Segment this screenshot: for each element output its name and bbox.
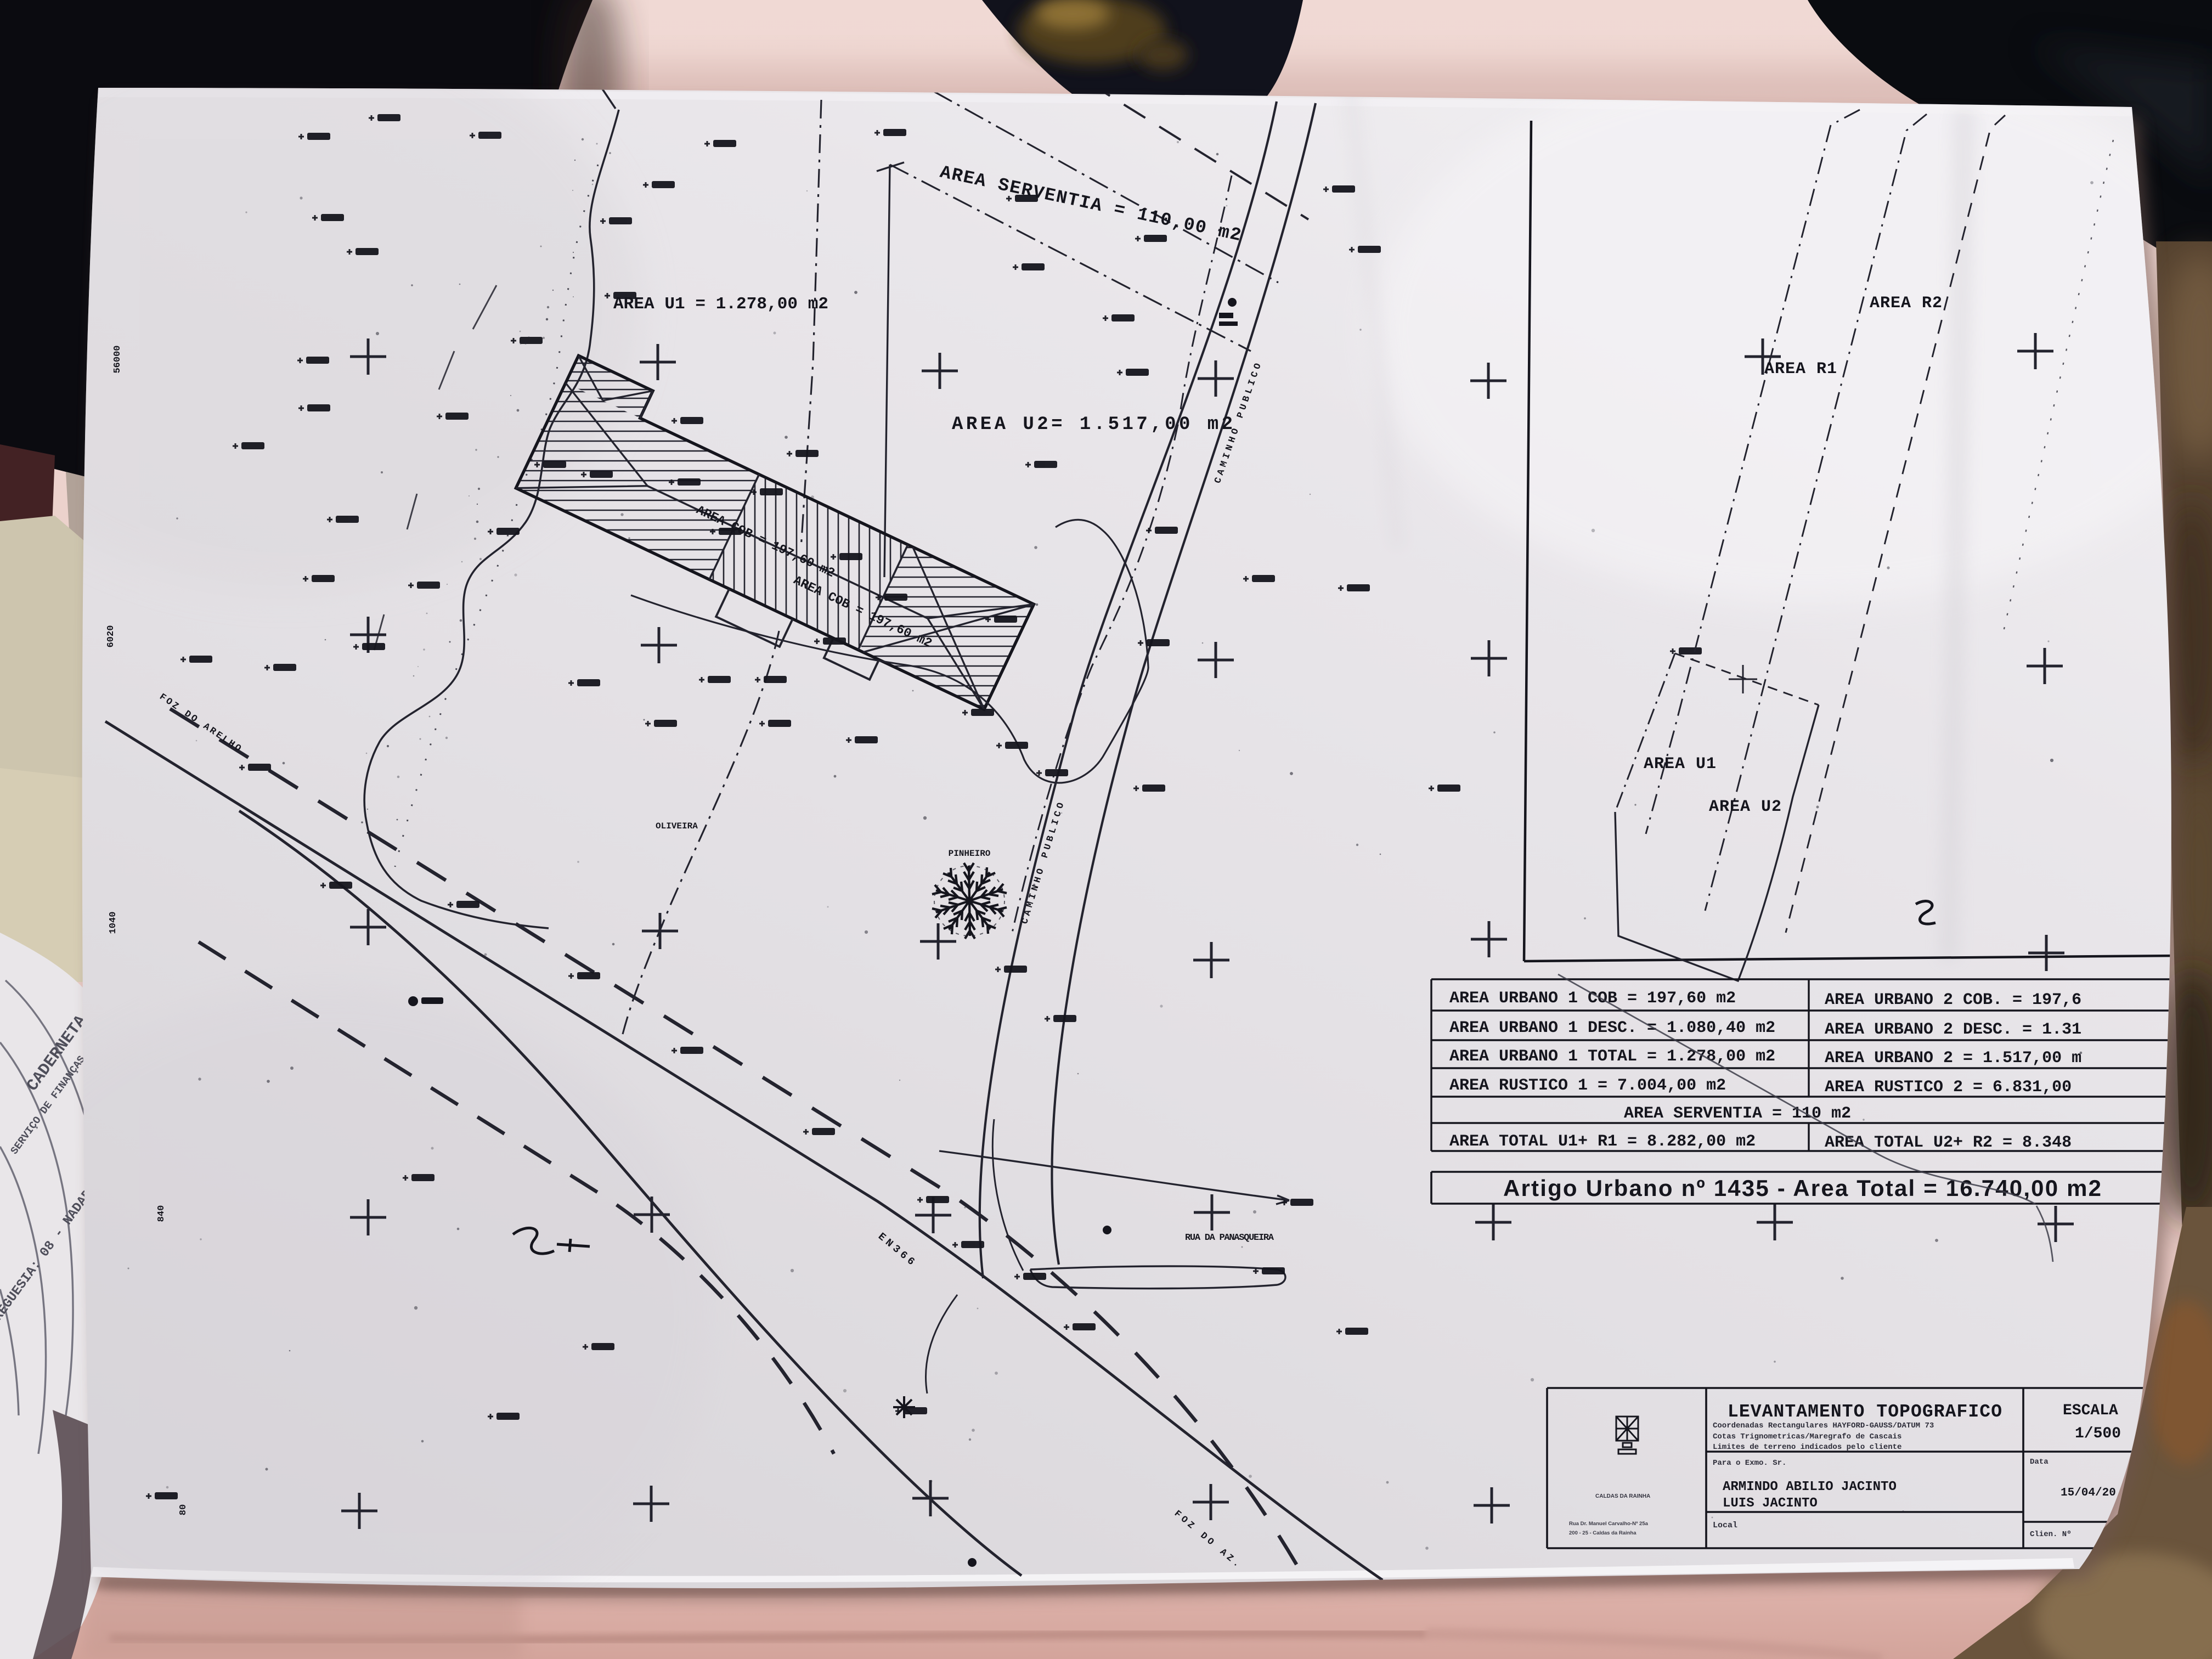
svg-text:RUA DA PANASQUEIRA: RUA DA PANASQUEIRA [1185, 1233, 1274, 1243]
svg-text:AREA RUSTICO 1 = 7.004,00 m2: AREA RUSTICO 1 = 7.004,00 m2 [1449, 1076, 1726, 1095]
svg-text:AREA RUSTICO 2 = 6.831,00: AREA RUSTICO 2 = 6.831,00 [1825, 1078, 2072, 1097]
svg-text:AREA R2: AREA R2 [1870, 294, 1942, 313]
svg-text:1/500: 1/500 [2075, 1425, 2121, 1442]
svg-text:ESCALA: ESCALA [2063, 1402, 2118, 1419]
svg-text:Cotas Trignometricas/Maregrafo: Cotas Trignometricas/Maregrafo de Cascai… [1713, 1432, 1901, 1441]
svg-text:AREA U1: AREA U1 [1644, 755, 1716, 774]
svg-text:AREA URBANO 2 = 1.517,00 m: AREA URBANO 2 = 1.517,00 m [1825, 1049, 2081, 1068]
svg-text:15/04/20: 15/04/20 [2061, 1487, 2116, 1499]
svg-text:LEVANTAMENTO TOPOGRAFICO: LEVANTAMENTO TOPOGRAFICO [1728, 1402, 2002, 1422]
svg-text:AREA TOTAL U1+ R1 = 8.282,00 m: AREA TOTAL U1+ R1 = 8.282,00 m2 [1449, 1132, 1756, 1151]
svg-text:80: 80 [178, 1504, 189, 1515]
svg-text:ARMINDO ABILIO JACINTO: ARMINDO ABILIO JACINTO [1723, 1480, 1897, 1494]
svg-text:LUIS JACINTO: LUIS JACINTO [1723, 1496, 1818, 1511]
svg-text:6020: 6020 [106, 625, 116, 648]
svg-text:AREA URBANO 1 COB = 197,60 m2: AREA URBANO 1 COB = 197,60 m2 [1449, 989, 1736, 1008]
svg-text:CALDAS DA RAINHA: CALDAS DA RAINHA [1595, 1493, 1650, 1499]
svg-text:56000: 56000 [112, 345, 123, 373]
svg-text:200 - 25 - Caldas da Rainha: 200 - 25 - Caldas da Rainha [1569, 1530, 1637, 1536]
svg-text:Coordenadas Rectangulares HAYF: Coordenadas Rectangulares HAYFORD-GAUSS/… [1713, 1421, 1934, 1430]
svg-text:Para o Exmo. Sr.: Para o Exmo. Sr. [1713, 1459, 1786, 1468]
svg-text:AREA URBANO 1 DESC. = 1.080,40: AREA URBANO 1 DESC. = 1.080,40 m2 [1449, 1019, 1775, 1037]
svg-text:AREA U2: AREA U2 [1709, 798, 1781, 816]
svg-text:PINHEIRO: PINHEIRO [949, 849, 991, 859]
svg-text:Data: Data [2030, 1458, 2049, 1466]
svg-text:Rua Dr. Manuel Carvalho-Nº 25a: Rua Dr. Manuel Carvalho-Nº 25a [1569, 1521, 1649, 1527]
svg-text:Artigo Urbano nº 1435 - Area T: Artigo Urbano nº 1435 - Area Total = 16.… [1503, 1175, 2101, 1201]
svg-text:AREA U1 = 1.278,00 m2: AREA U1 = 1.278,00 m2 [613, 295, 828, 314]
svg-text:Local: Local [1713, 1521, 1737, 1530]
svg-text:OLIVEIRA: OLIVEIRA [656, 821, 698, 831]
svg-text:AREA URBANO 2 COB. = 197,6: AREA URBANO 2 COB. = 197,6 [1825, 991, 2081, 1009]
svg-text:AREA TOTAL U2+ R2 = 8.348: AREA TOTAL U2+ R2 = 8.348 [1825, 1133, 2072, 1152]
svg-text:AREA R1: AREA R1 [1764, 360, 1837, 379]
svg-text:AREA URBANO 1 TOTAL = 1.278,00: AREA URBANO 1 TOTAL = 1.278,00 m2 [1449, 1047, 1775, 1066]
svg-text:AREA URBANO 2 DESC. = 1.31: AREA URBANO 2 DESC. = 1.31 [1825, 1020, 2081, 1039]
svg-text:Clien. Nº: Clien. Nº [2030, 1530, 2072, 1539]
svg-text:840: 840 [156, 1205, 167, 1222]
svg-text:Limites de terreno indicados p: Limites de terreno indicados pelo client… [1713, 1443, 1901, 1452]
svg-text:1040: 1040 [108, 912, 119, 934]
